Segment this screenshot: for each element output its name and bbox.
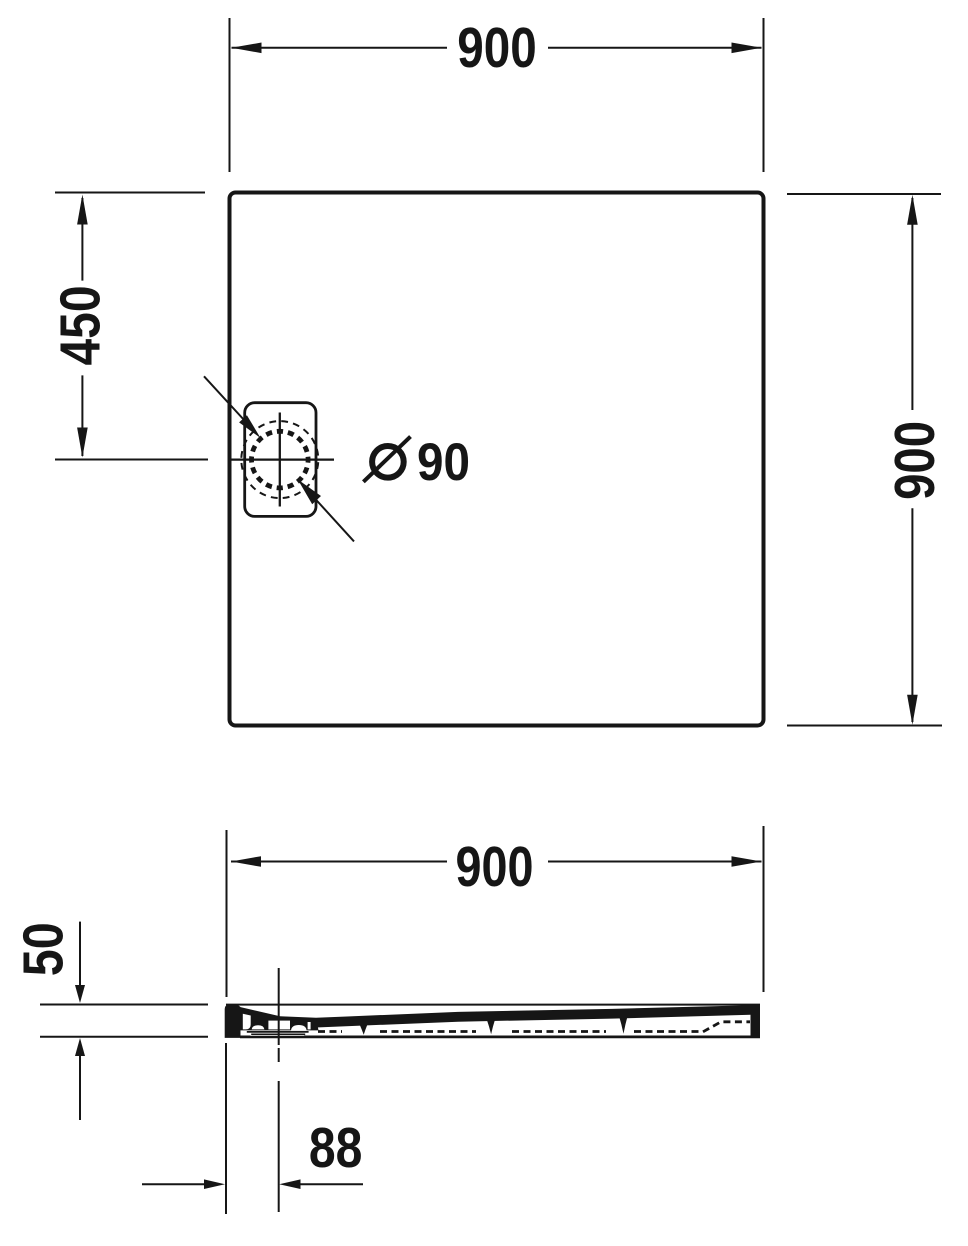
svg-text:900: 900: [457, 16, 537, 79]
svg-text:900: 900: [456, 835, 534, 898]
svg-text:450: 450: [49, 286, 112, 366]
svg-text:90: 90: [417, 433, 470, 492]
svg-text:50: 50: [11, 922, 74, 976]
svg-text:900: 900: [883, 421, 946, 500]
svg-text:88: 88: [309, 1116, 363, 1179]
